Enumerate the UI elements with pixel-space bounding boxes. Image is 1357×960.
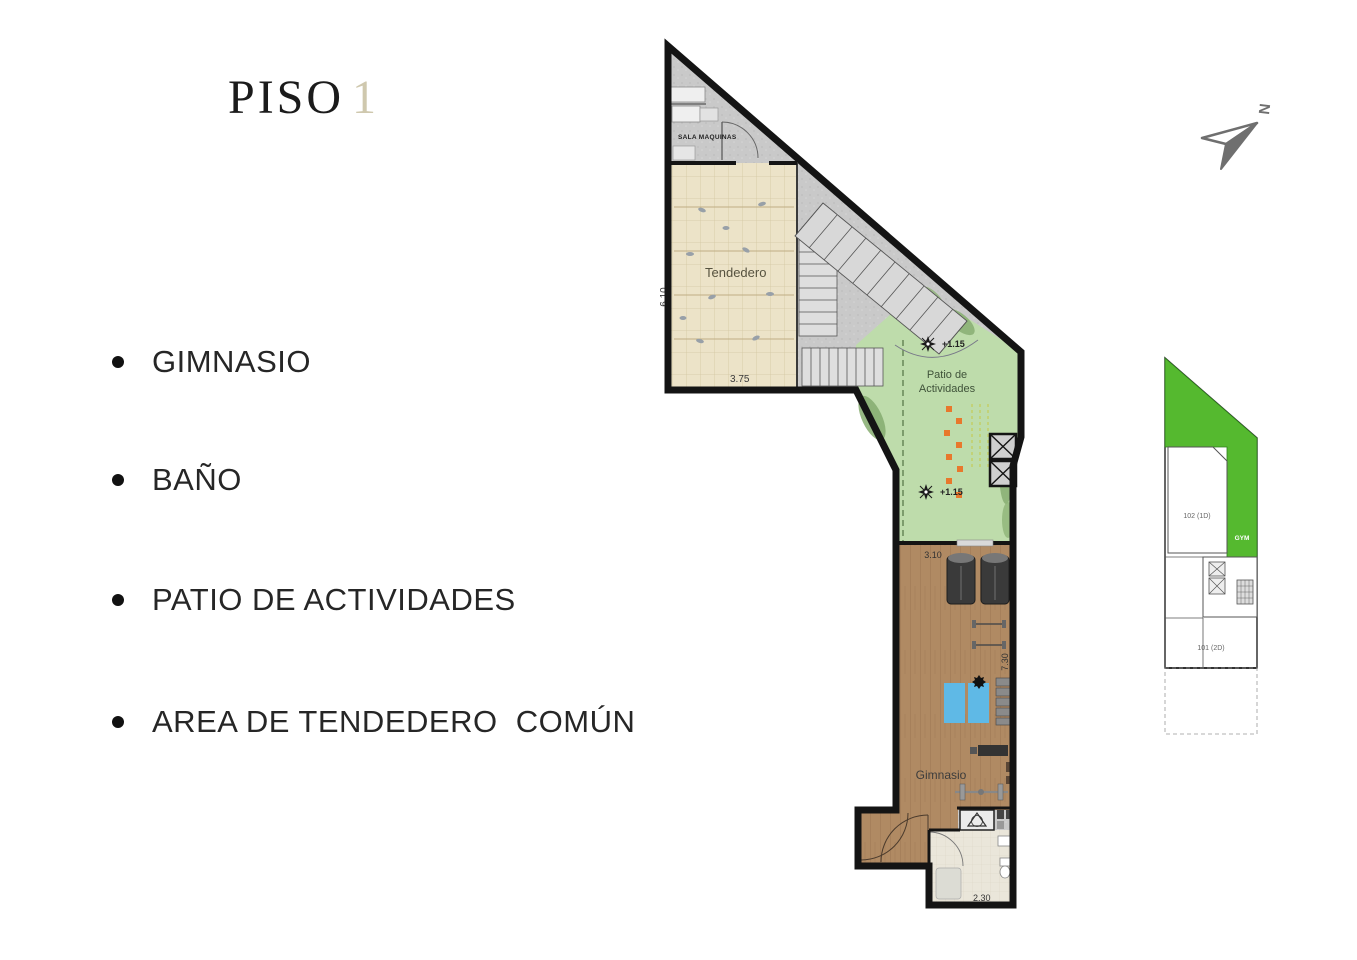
patio-label-2: Actividades: [919, 383, 976, 395]
key-plan: 102 (1D) GYM 101 (2D): [1158, 348, 1262, 740]
keyplan-unit-bottom-label: 101 (2D): [1197, 645, 1224, 652]
page-title: PISO1: [228, 70, 379, 125]
bullet-label: GIMNASIO: [152, 344, 311, 380]
keyplan-unit-102: [1168, 447, 1227, 553]
north-arrow: N: [1188, 90, 1288, 182]
title-word: PISO: [228, 71, 344, 124]
north-label: N: [1255, 103, 1273, 116]
mat-icon: [968, 683, 989, 723]
room-gimnasio: Gimnasio 3.10 7.30: [897, 545, 1013, 810]
bullet-dot: [112, 356, 124, 368]
bullet-dot: [112, 594, 124, 606]
plant-icon: [972, 675, 986, 689]
slide: PISO1 GIMNASIO BAÑO PATIO DE ACTIVIDADES…: [0, 0, 1357, 960]
keyplan-unit-top-label: 102 (1D): [1183, 513, 1210, 520]
bullet-label: BAÑO: [152, 462, 242, 498]
bullet-item-patio: PATIO DE ACTIVIDADES: [112, 578, 516, 622]
keyplan-lot-dashed: [1165, 668, 1257, 734]
tendedero-label: Tendedero: [705, 265, 766, 280]
level-value-2: +1.15: [940, 487, 963, 497]
bullet-item-gimnasio: GIMNASIO: [112, 340, 311, 384]
sala-maquinas-label: SALA MAQUINAS: [678, 134, 737, 141]
patio-label-1: Patio de: [927, 369, 967, 381]
bullet-label: AREA DE TENDEDERO COMÚN: [152, 704, 635, 740]
keyplan-core: [1203, 557, 1257, 617]
title-number: 1: [352, 71, 379, 124]
mat-icon: [944, 683, 965, 723]
floor-plan: SALA MAQUINAS Patio de Actividades: [650, 35, 1045, 915]
dim-7-30: 7.30: [1000, 653, 1010, 671]
dim-3-75: 3.75: [730, 374, 750, 385]
keyplan-gym-label: GYM: [1235, 535, 1250, 542]
room-tendedero: Tendedero 6.10 3.75: [659, 163, 797, 387]
bullet-item-bano: BAÑO: [112, 458, 242, 502]
room-bathroom: 2.30: [929, 830, 1013, 905]
sink-icon: [998, 836, 1011, 846]
bullet-dot: [112, 716, 124, 728]
dim-3-10: 3.10: [924, 550, 942, 560]
bullet-item-tendedero: AREA DE TENDEDERO COMÚN: [112, 700, 635, 744]
level-value-1: +1.15: [942, 339, 965, 349]
bullet-dot: [112, 474, 124, 486]
bullet-label: PATIO DE ACTIVIDADES: [152, 582, 516, 618]
gimnasio-label: Gimnasio: [916, 768, 967, 782]
